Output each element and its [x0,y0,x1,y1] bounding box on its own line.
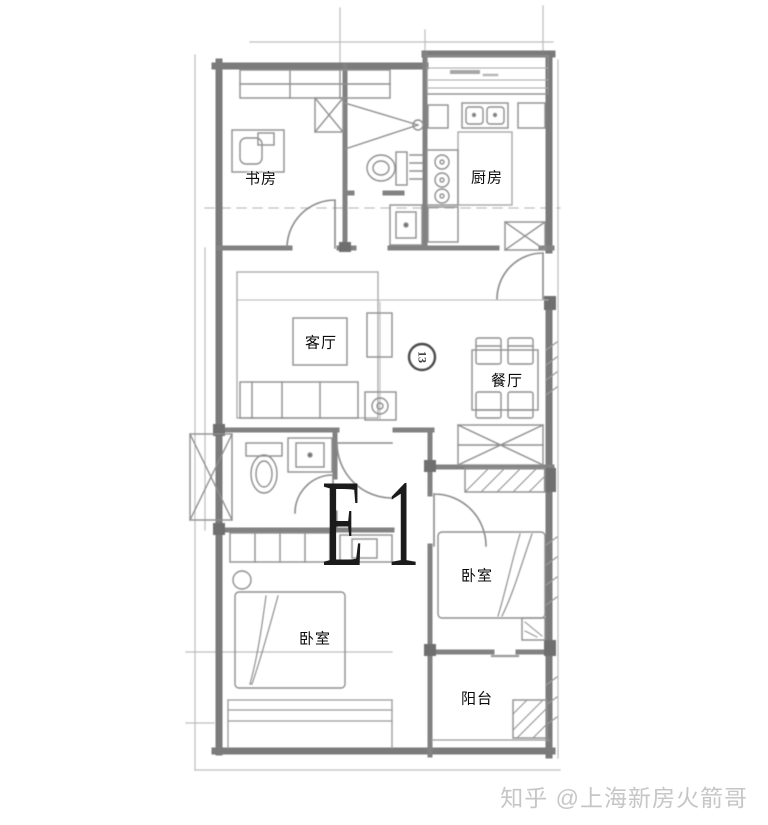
stool-icon [233,571,251,589]
room-label-bedroom-right: 卧室 [461,565,493,586]
room-label-living-room: 客厅 [305,332,337,353]
study-door-arc [287,200,335,248]
sofa-icon [240,382,358,418]
fridge-icon [505,222,545,250]
kitchen-fixtures [427,56,548,250]
watermark-text: 知乎 @上海新房火箭哥 [500,779,748,813]
counter-segment [518,103,545,128]
room-label-study: 书房 [245,168,277,189]
shaft-x-icon [190,434,232,520]
axis-marker-number: 13 [415,351,430,363]
radiator-icon [410,155,422,179]
shoe-cabinet-icon [458,425,543,465]
balcony-fixtures [513,700,547,738]
closet-icon [240,70,390,132]
shower-icon [345,103,423,149]
room-label-balcony: 阳台 [461,688,493,709]
bedroom-door-arc [434,494,486,546]
stove-icon [427,150,458,205]
desk-icon [232,130,284,172]
nightstand-icon [522,618,545,640]
floorplan-drawing [0,0,768,825]
bathroom-lower [190,434,332,520]
bedroom-right-furniture [438,468,545,640]
floorplan-page: 书房 厨房 客厅 餐厅 卧室 卧室 阳台 E1 13 知乎 @上海新房火箭哥 [0,0,768,825]
room-label-dining-room: 餐厅 [491,370,523,391]
flue-hatch [427,56,548,94]
toilet-icon [246,443,282,493]
cabinet-icon [428,207,458,242]
washing-machine-icon [513,700,547,738]
room-label-kitchen: 厨房 [471,167,503,188]
unit-code-label: E1 [322,462,442,586]
toilet-icon [367,152,407,185]
closet-hatch-icon [465,468,545,492]
study-furniture [232,70,390,172]
room-label-bedroom-left: 卧室 [299,628,331,649]
bathroom-top [345,103,423,245]
counter-segment [428,105,448,128]
interior-walls [219,54,552,755]
shaft-icon [390,205,422,245]
sink-icon [462,103,508,128]
entry-door-arc [497,253,543,299]
